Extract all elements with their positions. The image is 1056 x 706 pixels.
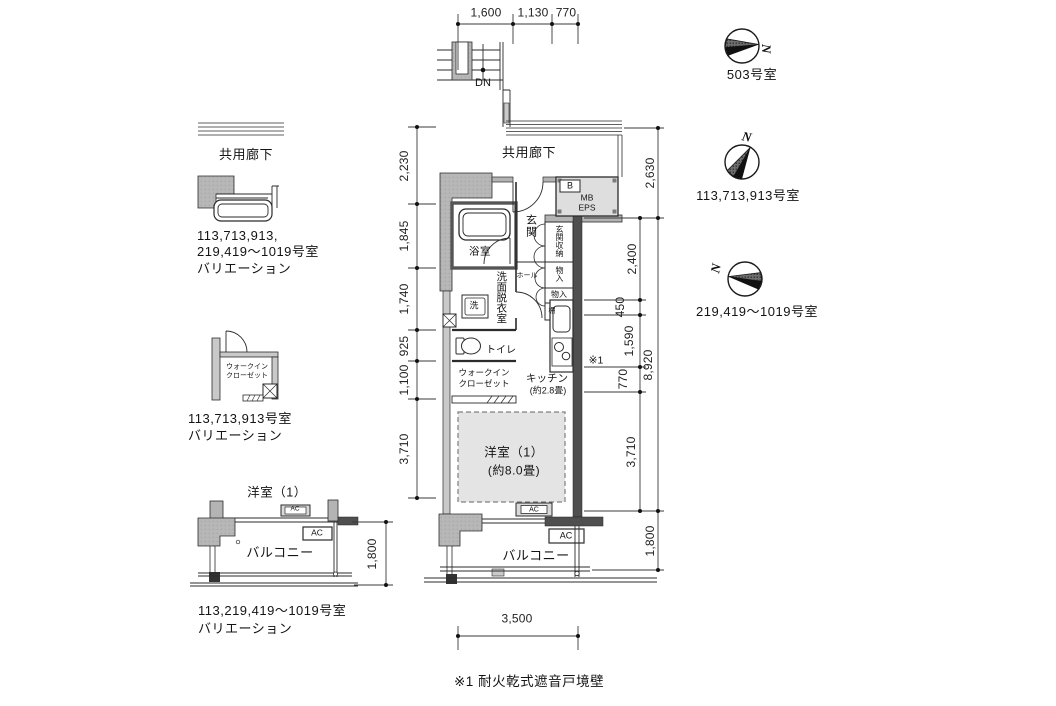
washer-label: 洗 [469,301,478,310]
variation-bottom-caption-1: 113,219,419～1019号室 [198,604,346,618]
variation-top-corridor-label: 共用廊下 [219,148,273,162]
variation-bottom-balcony-label: バルコニー [246,546,313,560]
wic-door-arc [226,331,247,352]
compass-503 [725,29,759,63]
stairs-down-label: DN [475,78,491,90]
washroom-label: 洗面脱衣室 [496,271,507,324]
dim-right-inner-4: 770 [616,369,630,390]
dim-left-5: 1,100 [397,364,411,395]
corridor-label: 共用廊下 [502,146,556,160]
dim-right-inner-5: 3,710 [624,436,638,467]
storage-a-label: 物入 [555,266,563,282]
dim-left-3: 1,740 [397,283,411,314]
variation-top-caption-1: 113,713,913, [197,229,278,243]
dim-left-4: 925 [397,336,411,357]
toilet-label: トイレ [486,346,516,357]
hall-label: ホール [517,272,538,279]
bathtub-fragment [214,200,272,221]
entrance-label: 玄関 [525,214,536,238]
bathroom [452,203,516,268]
ref1-label: ※1 [589,355,604,366]
compass-219 [728,262,762,296]
dim-top-3: 770 [556,7,577,20]
entrance-storage-label: 玄関収納 [555,225,563,257]
storage-b-label: 物入 [551,291,567,299]
variation-bottom-ac-1: AC [290,507,299,514]
balcony-label: バルコニー [502,549,569,563]
variation-middle-wic-1: ウォークイン [226,363,268,370]
vanity-box [443,314,456,327]
variation-middle-caption-1: 113,713,913号室 [188,412,292,426]
north-letter-503: N [759,44,773,54]
variation-top-plan [198,123,284,221]
dim-right-inner-3: 1,590 [622,325,636,356]
ac-balcony-label: AC [560,531,573,540]
floorplan-page: { "note": "※1 耐火乾式遮音戸境壁", "dims": { "top… [0,0,1056,706]
wic-label-1: ウォークイン [458,369,509,378]
variation-bottom-dim: 1,800 [365,538,379,569]
compass-label-503: 503号室 [727,68,777,82]
dim-top-2: 1,130 [517,7,548,20]
stove-burner [562,352,570,360]
variation-bottom-room-label: 洋室（1） [247,486,306,499]
variation-bottom-ac-2: AC [311,529,323,538]
footnote: ※1 耐火乾式遮音戸境壁 [454,675,604,689]
washroom-door-arc [516,292,542,318]
stove-burner [555,343,564,352]
bath-label: 浴室 [469,246,491,257]
eps-label: EPS [578,204,595,213]
dim-right-outer-3: 1,800 [643,525,657,556]
kitchen-size-label: (約2.8畳) [530,386,567,395]
dim-left-2: 1,845 [397,220,411,251]
breaker-box-label: B [567,181,573,190]
variation-top-caption-3: バリエーション [197,262,291,276]
dim-left-1: 2,230 [397,150,411,181]
dim-right-outer-2: 8,920 [641,349,655,380]
toilet-fixture [456,338,481,354]
western-room-size-label: (約8.0畳) [488,465,540,478]
dim-right-inner-2: 450 [613,297,627,318]
variation-top-caption-2: 219,419～1019号室 [197,245,319,259]
shelf-label: 棚 [549,307,556,314]
dim-right-outer-1: 2,630 [643,157,657,188]
compass-label-113: 113,713,913号室 [696,189,800,203]
compass-113 [725,145,759,179]
compass-label-219: 219,419～1019号室 [696,305,818,319]
staircase [437,42,503,80]
variation-middle-caption-2: バリエーション [188,429,282,443]
plan-linework [0,0,1056,706]
dim-top-1: 1,600 [470,7,501,20]
dim-right-inner-1: 2,400 [625,243,639,274]
kitchen-label: キッチン [526,373,568,384]
wic-label-2: クローゼット [458,380,509,389]
dim-left-6: 3,710 [397,433,411,464]
bathtub [459,209,510,240]
ac-window-label: AC [529,506,539,513]
balcony-zone [424,503,657,584]
variation-middle-wic-2: クローゼット [226,372,268,379]
dim-bottom: 3,500 [501,613,532,626]
western-room-label: 洋室（1） [484,446,543,459]
mb-label: MB [581,194,594,203]
variation-bottom-caption-2: バリエーション [198,622,292,636]
